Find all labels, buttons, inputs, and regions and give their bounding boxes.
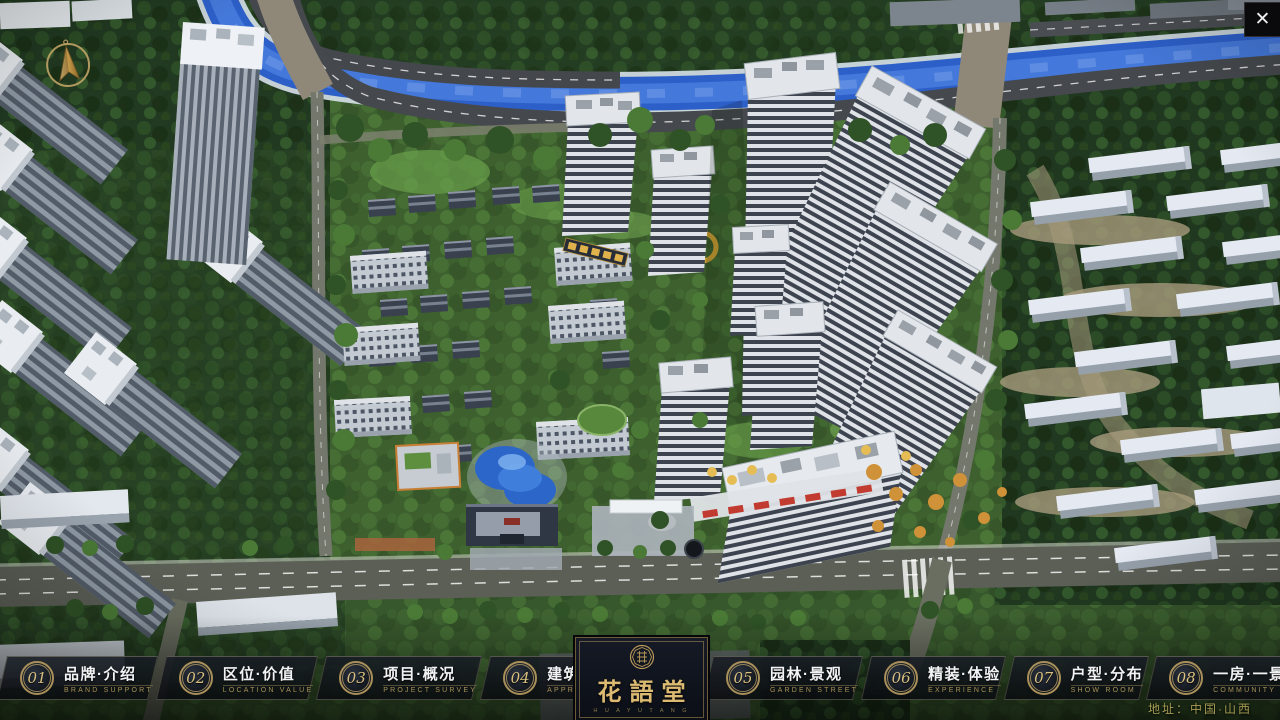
nav-badge: 04 [503, 661, 537, 695]
nav-item-views[interactable]: 08 一房·一景 COMMUNITY [1151, 656, 1280, 700]
nav-item-interior[interactable]: 06 精装·体验 EXPERIENCE [866, 656, 1001, 700]
nav-badge: 03 [339, 661, 373, 695]
nav-badge: 07 [1027, 661, 1061, 695]
nav-item-project[interactable]: 03 项目·概况 PROJECT SURVEY [321, 656, 477, 700]
close-icon: ✕ [1255, 10, 1271, 29]
nav-badge: 01 [20, 661, 54, 695]
nav-label-en: PROJECT SURVEY [383, 685, 477, 694]
nav-label-cn: 户型·分布 [1071, 663, 1144, 684]
nav-group-right: 05 园林·景观 GARDEN STREET 06 精装·体验 EXPERIEN… [708, 656, 1278, 700]
nav-label-en: LOCATION VALUE [223, 685, 313, 694]
nav-label-cn: 品牌·介绍 [64, 663, 153, 684]
nav-label-en: EXPERIENCE [928, 685, 1001, 694]
nav-badge: 05 [726, 661, 760, 695]
nav-label-cn: 精装·体验 [928, 663, 1001, 684]
nav-label-en: BRAND SUPPORT [64, 685, 153, 694]
nav-label-en: SHOW ROOM [1071, 685, 1144, 694]
masterplan-view[interactable] [0, 0, 1280, 720]
nav-label-cn: 一房·一景 [1213, 663, 1280, 684]
nav-label-cn: 园林·景观 [770, 663, 858, 684]
brand-name: 花語堂 [590, 672, 694, 707]
nav-item-floorplan[interactable]: 07 户型·分布 SHOW ROOM [1009, 656, 1144, 700]
nav-item-location[interactable]: 02 区位·价值 LOCATION VALUE [161, 656, 313, 700]
nav-item-garden[interactable]: 05 园林·景观 GARDEN STREET [708, 656, 858, 700]
nav-label-cn: 区位·价值 [223, 663, 313, 684]
nav-label-cn: 项目·概况 [383, 663, 477, 684]
brand-name-latin: H U A Y U T A N G [593, 708, 689, 714]
nav-group-left: 01 品牌·介绍 BRAND SUPPORT 02 区位·价值 LOCATION… [2, 656, 574, 700]
nav-badge: 02 [179, 661, 213, 695]
nav-item-brand[interactable]: 01 品牌·介绍 BRAND SUPPORT [2, 656, 153, 700]
nav-badge: 08 [1169, 661, 1203, 695]
nav-badge: 06 [884, 661, 918, 695]
masterplan-render [0, 0, 1280, 720]
address-text: 地址：中国·山西 [1148, 700, 1252, 717]
nav-label-en: COMMUNITY [1213, 685, 1280, 694]
brand-seal-icon [629, 644, 655, 670]
presentation-window: ✕ 01 品牌·介绍 BRAND SUPPORT 02 区位·价值 LOCATI… [0, 0, 1280, 720]
logo-panel[interactable]: 花語堂 H U A Y U T A N G [575, 637, 708, 720]
nav-label-en: GARDEN STREET [770, 685, 858, 694]
compass-north-icon [38, 34, 98, 94]
close-button[interactable]: ✕ [1244, 2, 1280, 37]
